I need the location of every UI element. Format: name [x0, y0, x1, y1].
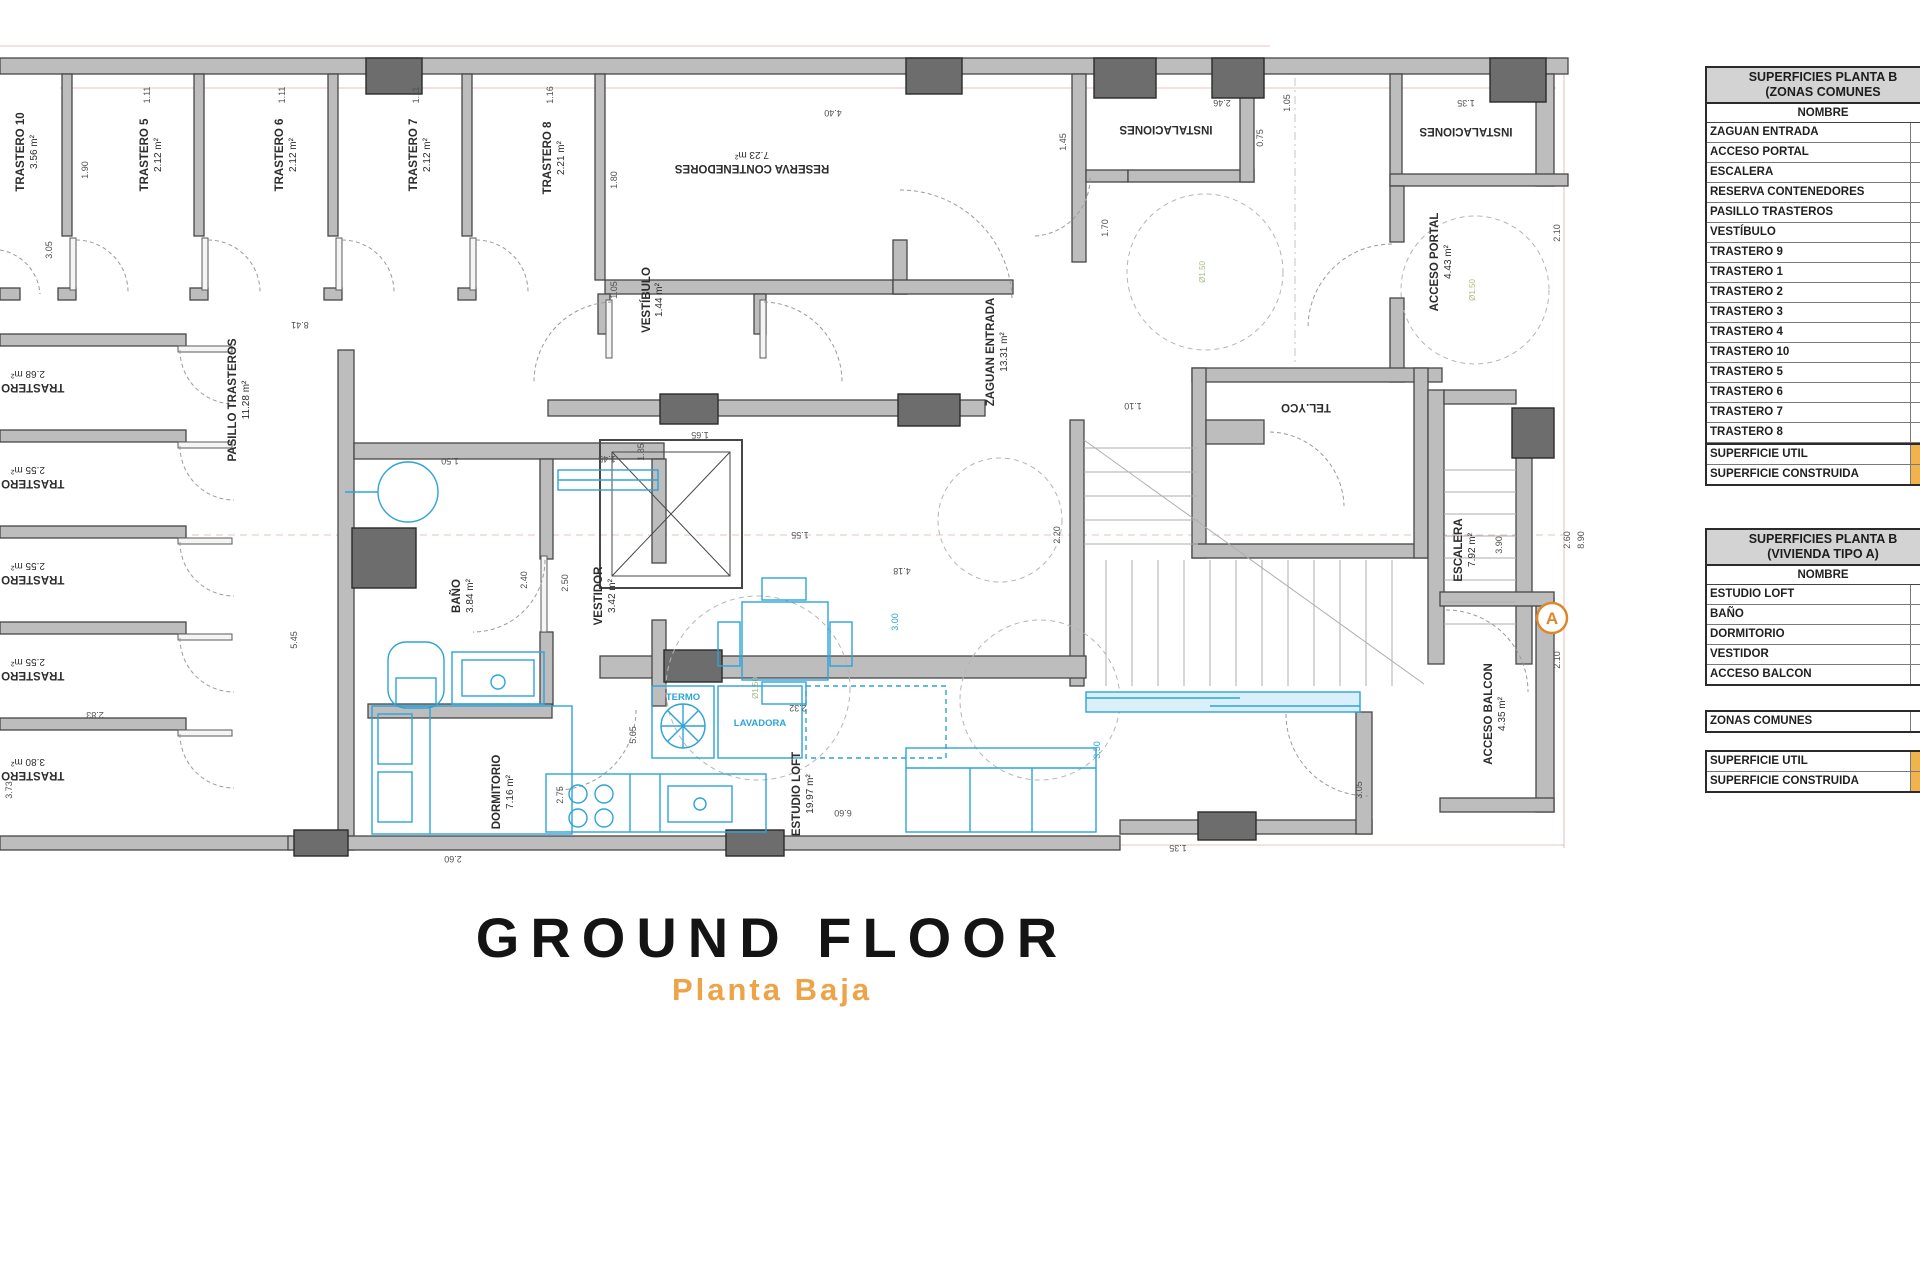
svg-text:TRASTERO 8: TRASTERO 8	[542, 121, 554, 194]
svg-text:BAÑO: BAÑO	[450, 579, 463, 613]
room-label-trastero3: TRASTERO 3 2.55 m²	[0, 464, 64, 489]
svg-text:INSTALACIONES: INSTALACIONES	[1419, 125, 1512, 137]
section-marker-a: A	[1537, 603, 1567, 633]
svg-text:ZAGUAN ENTRADA: ZAGUAN ENTRADA	[985, 298, 997, 407]
dim-label: 0.75	[1255, 129, 1265, 147]
svg-text:TRASTERO 4: TRASTERO 4	[0, 381, 64, 393]
dim-label: 1.85	[636, 443, 646, 461]
dim-label: 1.70	[1100, 219, 1110, 237]
table-row: TRASTERO 5	[1707, 363, 1920, 383]
table-row: RESERVA CONTENEDORES	[1707, 183, 1920, 203]
svg-text:TRASTERO 2: TRASTERO 2	[0, 573, 64, 585]
room-label-trastero1: TRASTERO 1 2.55 m²	[0, 656, 64, 681]
table-row-total: SUPERFICIE UTIL	[1707, 443, 1920, 465]
dim-label: 8.41	[291, 320, 309, 330]
dim-label: 2.50	[560, 574, 570, 592]
sink-icon	[668, 786, 732, 822]
bed-icon	[372, 706, 572, 834]
room-label-acceso-portal: ACCESO PORTAL 4.43 m²	[1429, 213, 1454, 312]
dim-label: 2.32	[789, 703, 807, 713]
svg-text:13.31 m²: 13.31 m²	[999, 332, 1010, 372]
svg-text:4.35 m²: 4.35 m²	[1497, 696, 1508, 731]
svg-text:19.97 m²: 19.97 m²	[805, 774, 816, 814]
dim-label: 5.05	[628, 726, 638, 744]
page-subtitle: Planta Baja	[672, 972, 872, 1008]
dim-label: 3.05	[44, 241, 54, 259]
termo-label: TERMO	[666, 692, 700, 703]
dim-label-blue: 3.50	[1092, 741, 1102, 759]
box-zonas-comunes: ZONAS COMUNES	[1705, 710, 1920, 733]
dim-label: 1.50	[441, 456, 459, 466]
table-row: DORMITORIO	[1707, 625, 1920, 645]
table-row: BAÑO	[1707, 605, 1920, 625]
room-label-vestibulo: VESTÍBULO 1.44 m²	[640, 267, 665, 333]
room-label-trastero10: TRASTERO 10 3.56 m²	[15, 112, 40, 191]
table-row-total: SUPERFICIE UTIL	[1707, 752, 1920, 772]
room-label-estudio-loft: ESTUDIO LOFT 19.97 m²	[791, 752, 816, 836]
svg-text:VESTÍBULO: VESTÍBULO	[640, 267, 653, 333]
svg-text:7.92 m²: 7.92 m²	[1467, 532, 1478, 567]
dim-label: 2.60	[1562, 531, 1572, 549]
room-label-telyco: TEL.YCO	[1281, 401, 1331, 413]
svg-text:2.55 m²: 2.55 m²	[10, 656, 45, 667]
dim-label: 2.75	[555, 786, 565, 804]
dim-label: 2.60	[444, 854, 462, 864]
table-row: TRASTERO 7	[1707, 403, 1920, 423]
table-row: TRASTERO 1	[1707, 263, 1920, 283]
dim-label: 1.11	[277, 87, 287, 104]
svg-text:11.28 m²: 11.28 m²	[241, 380, 252, 419]
table-row: PASILLO TRASTEROS	[1707, 203, 1920, 223]
room-label-instalaciones-1: INSTALACIONES	[1119, 123, 1212, 135]
room-label-trastero9: TRASTERO 9 3.80 m²	[0, 756, 64, 781]
dim-label: 1.10	[1124, 401, 1142, 411]
room-label-acceso-balcon: ACCESO BALCON 4.35 m²	[1483, 663, 1508, 765]
svg-text:2.55 m²: 2.55 m²	[10, 560, 45, 571]
dim-label: 1.35	[1169, 843, 1187, 853]
table-row: TRASTERO 9	[1707, 243, 1920, 263]
dim-label: 1.65	[691, 430, 709, 440]
dim-label: 1.45	[1058, 133, 1068, 151]
svg-text:ACCESO PORTAL: ACCESO PORTAL	[1429, 213, 1441, 312]
floor-plan-drawing: Ø1.50 Ø1.50 Ø1.50	[0, 0, 1920, 1280]
box-superficies: SUPERFICIE UTIL SUPERFICIE CONSTRUIDA	[1705, 750, 1920, 793]
table-row: ZONAS COMUNES	[1707, 712, 1920, 731]
svg-text:INSTALACIONES: INSTALACIONES	[1119, 123, 1212, 135]
dim-label: 2.20	[1052, 526, 1062, 544]
svg-text:TRASTERO 7: TRASTERO 7	[408, 119, 420, 192]
svg-text:1.44 m²: 1.44 m²	[654, 282, 665, 317]
svg-text:TRASTERO 5: TRASTERO 5	[139, 118, 151, 191]
dim-label: 1.11	[411, 87, 421, 104]
elevator-shaft	[600, 440, 742, 588]
table-vivienda-tipo-a: SUPERFICIES PLANTA B (VIVIENDA TIPO A) N…	[1705, 528, 1920, 686]
table-row: VESTIDOR	[1707, 645, 1920, 665]
table-header: SUPERFICIES PLANTA B (ZONAS COMUNES	[1707, 68, 1920, 104]
table-zonas-comunes: SUPERFICIES PLANTA B (ZONAS COMUNES NOMB…	[1705, 66, 1920, 486]
table-row-total: SUPERFICIE CONSTRUIDA	[1707, 465, 1920, 484]
svg-text:DORMITORIO: DORMITORIO	[491, 755, 503, 830]
dim-label: 2.10	[1552, 224, 1562, 242]
room-label-trastero7: TRASTERO 7 2.12 m²	[408, 119, 433, 192]
room-label-dormitorio: DORMITORIO 7.16 m²	[491, 755, 516, 830]
svg-text:2.21 m²: 2.21 m²	[556, 140, 567, 175]
dim-label: 6.60	[834, 808, 852, 818]
table-row: TRASTERO 4	[1707, 323, 1920, 343]
table-row: ZAGUAN ENTRADA	[1707, 123, 1920, 143]
dim-label: 3.73	[4, 781, 14, 799]
dim-label: 4.40	[824, 108, 842, 118]
table-row: ACCESO BALCON	[1707, 665, 1920, 684]
svg-text:2.12 m²: 2.12 m²	[288, 137, 299, 172]
svg-text:7.23 m²: 7.23 m²	[734, 149, 769, 160]
room-label-escalera: ESCALERA 7.92 m²	[1453, 518, 1478, 581]
lavadora-label: LAVADORA	[734, 718, 787, 729]
table-row: TRASTERO 10	[1707, 343, 1920, 363]
table-row: VESTÍBULO	[1707, 223, 1920, 243]
svg-text:TRASTERO 3: TRASTERO 3	[0, 477, 64, 489]
svg-text:TEL.YCO: TEL.YCO	[1281, 401, 1331, 413]
room-label-vestidor: VESTIDOR 3.42 m²	[593, 566, 618, 625]
room-label-trastero2: TRASTERO 2 2.55 m²	[0, 560, 64, 585]
svg-text:PASILLO TRASTEROS: PASILLO TRASTEROS	[227, 338, 239, 461]
room-label-bano: BAÑO 3.84 m²	[450, 578, 476, 613]
column-header: NOMBRE	[1707, 566, 1920, 585]
table-row: ESTUDIO LOFT	[1707, 585, 1920, 605]
svg-text:2.55 m²: 2.55 m²	[10, 464, 45, 475]
dim-label: 2.10	[1552, 651, 1562, 669]
svg-text:RESERVA CONTENEDORES: RESERVA CONTENEDORES	[674, 162, 829, 174]
dim-label: 1.55	[791, 530, 809, 540]
dim-label: 4.18	[893, 566, 911, 576]
floor-plan-sheet: Ø1.50 Ø1.50 Ø1.50	[0, 0, 1920, 1280]
svg-text:TRASTERO 9: TRASTERO 9	[0, 769, 64, 781]
chair-icon	[762, 682, 806, 704]
table-row: ACCESO PORTAL	[1707, 143, 1920, 163]
svg-text:TRASTERO 6: TRASTERO 6	[274, 119, 286, 192]
svg-text:ACCESO BALCON: ACCESO BALCON	[1483, 663, 1495, 765]
table-header: SUPERFICIES PLANTA B (VIVIENDA TIPO A)	[1707, 530, 1920, 566]
svg-text:7.16 m²: 7.16 m²	[505, 774, 516, 809]
table-row: TRASTERO 2	[1707, 283, 1920, 303]
svg-text:2.68 m²: 2.68 m²	[10, 368, 45, 379]
turning-label: Ø1.50	[1198, 261, 1207, 283]
dim-label: 1.45	[598, 454, 616, 464]
sliding-door-icon	[1086, 692, 1360, 712]
room-label-reserva: RESERVA CONTENEDORES 7.23 m²	[674, 149, 829, 174]
dim-label: 1.16	[545, 86, 555, 104]
svg-text:3.84 m²: 3.84 m²	[465, 578, 476, 613]
svg-text:VESTIDOR: VESTIDOR	[593, 566, 605, 625]
sofa-icon	[906, 748, 1096, 832]
dim-label: 2.46	[1213, 98, 1231, 108]
dim-label: 3.05	[1354, 781, 1364, 799]
dim-label: 1.05	[1282, 94, 1292, 112]
svg-text:4.43 m²: 4.43 m²	[1443, 244, 1454, 279]
dim-label: 5.45	[289, 631, 299, 649]
dim-label: 3.90	[1494, 536, 1504, 554]
dim-label: 8.90	[1576, 531, 1586, 549]
staircase-treads	[1084, 440, 1516, 686]
dim-label: 1.90	[80, 161, 90, 179]
svg-text:TRASTERO 10: TRASTERO 10	[15, 112, 27, 191]
table-row: ESCALERA	[1707, 163, 1920, 183]
room-label-trastero8: TRASTERO 8 2.21 m²	[542, 121, 567, 194]
page-title: GROUND FLOOR	[476, 905, 1068, 970]
turning-label: Ø1.50	[1468, 279, 1477, 301]
svg-text:ESCALERA: ESCALERA	[1453, 518, 1465, 581]
svg-text:2.12 m²: 2.12 m²	[422, 137, 433, 172]
table-row: TRASTERO 6	[1707, 383, 1920, 403]
room-label-trastero4: TRASTERO 4 2.68 m²	[0, 368, 64, 393]
table-row-total: SUPERFICIE CONSTRUIDA	[1707, 772, 1920, 791]
room-label-instalaciones-2: INSTALACIONES	[1419, 125, 1512, 137]
dim-label: 1.05	[609, 281, 619, 299]
room-label-trastero6: TRASTERO 6 2.12 m²	[274, 119, 299, 192]
svg-text:3.56 m²: 3.56 m²	[29, 134, 40, 169]
column-header: NOMBRE	[1707, 104, 1920, 123]
dim-label: 1.80	[609, 171, 619, 189]
dimension-labels: 1.11 1.11 1.11 1.16 4.40 1.90 3.05 1.80 …	[4, 86, 1586, 864]
room-label-trastero5: TRASTERO 5 2.12 m²	[139, 118, 164, 191]
svg-text:ESTUDIO LOFT: ESTUDIO LOFT	[791, 752, 803, 836]
dim-label: 1.35	[1457, 98, 1475, 108]
dim-label-blue: 3.00	[890, 613, 900, 631]
svg-text:3.42 m²: 3.42 m²	[607, 578, 618, 613]
room-label-pasillo: PASILLO TRASTEROS 11.28 m²	[227, 338, 252, 461]
dim-label: 1.11	[142, 87, 152, 104]
washbasin-icon	[378, 462, 438, 522]
table-row: TRASTERO 3	[1707, 303, 1920, 323]
marker-a-letter: A	[1546, 609, 1558, 628]
table-row: TRASTERO 8	[1707, 423, 1920, 443]
dim-label: 2.83	[86, 710, 104, 720]
svg-text:2.12 m²: 2.12 m²	[153, 137, 164, 172]
turning-circle-labels: Ø1.50 Ø1.50 Ø1.50	[751, 261, 1477, 699]
room-label-zaguan: ZAGUAN ENTRADA 13.31 m²	[985, 298, 1010, 407]
dim-label: 2.40	[519, 571, 529, 589]
svg-text:3.80 m²: 3.80 m²	[10, 756, 45, 767]
svg-text:TRASTERO 1: TRASTERO 1	[0, 669, 64, 681]
